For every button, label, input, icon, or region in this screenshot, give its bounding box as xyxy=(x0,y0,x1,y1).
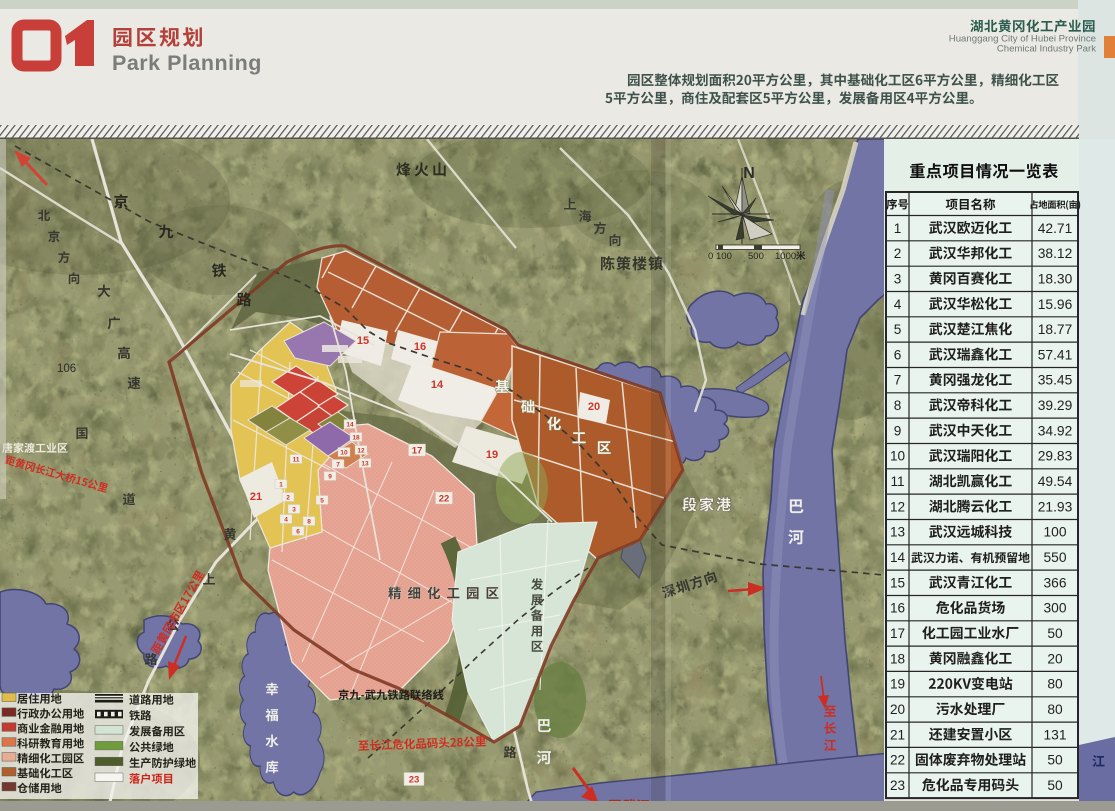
svg-text:8: 8 xyxy=(894,398,902,413)
svg-text:18.77: 18.77 xyxy=(1038,322,1073,337)
svg-text:57.41: 57.41 xyxy=(1038,347,1073,362)
svg-text:34.92: 34.92 xyxy=(1038,423,1073,438)
svg-text:11: 11 xyxy=(890,474,904,489)
svg-text:550: 550 xyxy=(1043,550,1066,565)
svg-text:14: 14 xyxy=(890,550,906,565)
svg-text:5: 5 xyxy=(894,322,902,337)
svg-text:18: 18 xyxy=(890,651,905,666)
svg-text:4: 4 xyxy=(894,297,902,312)
svg-text:22: 22 xyxy=(890,753,905,768)
svg-text:131: 131 xyxy=(1043,727,1066,742)
svg-text:2: 2 xyxy=(894,246,902,261)
svg-text:50: 50 xyxy=(1047,778,1063,793)
svg-text:10: 10 xyxy=(890,449,906,464)
svg-text:6: 6 xyxy=(894,347,902,362)
svg-text:50: 50 xyxy=(1047,626,1063,641)
svg-text:100: 100 xyxy=(1043,525,1066,540)
svg-text:38.12: 38.12 xyxy=(1038,246,1073,261)
svg-text:16: 16 xyxy=(890,601,905,616)
svg-text:42.71: 42.71 xyxy=(1038,221,1073,236)
svg-text:366: 366 xyxy=(1043,575,1066,590)
svg-text:21: 21 xyxy=(890,727,905,742)
svg-text:9: 9 xyxy=(894,423,902,438)
svg-text:15.96: 15.96 xyxy=(1038,297,1073,312)
svg-text:23: 23 xyxy=(890,778,905,793)
svg-text:18.30: 18.30 xyxy=(1038,271,1073,286)
svg-text:80: 80 xyxy=(1047,702,1063,717)
svg-text:300: 300 xyxy=(1043,601,1066,616)
svg-text:Park Planning: Park Planning xyxy=(112,51,262,75)
svg-text:3: 3 xyxy=(894,271,902,286)
svg-text:35.45: 35.45 xyxy=(1038,373,1073,388)
svg-text:39.29: 39.29 xyxy=(1038,398,1073,413)
svg-text:17: 17 xyxy=(890,626,905,641)
svg-text:20: 20 xyxy=(890,702,906,717)
svg-text:12: 12 xyxy=(890,499,905,514)
svg-text:1: 1 xyxy=(894,221,902,236)
svg-text:13: 13 xyxy=(890,525,905,540)
svg-text:21.93: 21.93 xyxy=(1038,499,1073,514)
svg-text:29.83: 29.83 xyxy=(1038,449,1073,464)
svg-text:15: 15 xyxy=(890,575,905,590)
svg-text:49.54: 49.54 xyxy=(1038,474,1073,489)
svg-text:19: 19 xyxy=(890,677,905,692)
svg-text:20: 20 xyxy=(1047,651,1063,666)
svg-text:50: 50 xyxy=(1047,753,1063,768)
svg-text:Chemical Industry Park: Chemical Industry Park xyxy=(997,44,1096,55)
svg-text:7: 7 xyxy=(894,373,902,388)
svg-text:80: 80 xyxy=(1047,677,1063,692)
